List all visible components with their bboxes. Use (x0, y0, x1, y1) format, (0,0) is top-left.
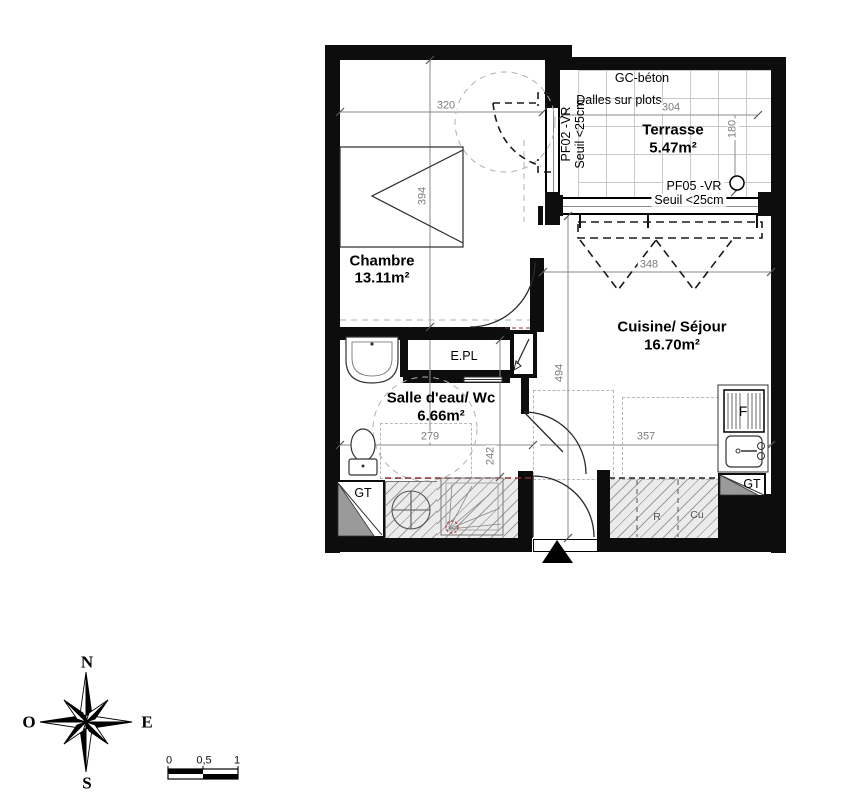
scale-half: 0,5 (196, 756, 211, 767)
room-label-chambre: Chambre (349, 254, 414, 269)
dim-terrasse-width: 304 (660, 103, 682, 114)
compass-west: O (22, 714, 35, 731)
floor-plan: GC-béton Dalles sur plots Terrasse 5.47m… (0, 0, 856, 800)
gt-left-label: GT (354, 487, 371, 500)
window-seuil-pf02: Seuil <25cm (574, 99, 587, 168)
fridge-label: F (739, 404, 748, 418)
scale-bar (168, 766, 238, 779)
dimension-lines (340, 60, 771, 538)
counter-cu-label: Cu (690, 510, 703, 521)
room-label-epl: E.PL (450, 350, 477, 363)
dim-terrasse-height: 180 (728, 118, 739, 140)
compass-rose (40, 672, 132, 772)
french-door-swing (578, 222, 762, 290)
room-area-terrasse: 5.47m² (649, 141, 697, 156)
turning-circle-chambre (455, 72, 555, 172)
siphon-icon (392, 491, 430, 529)
room-label-sdb: Salle d'eau/ Wc (387, 391, 496, 406)
shower-icon (441, 478, 503, 535)
door-entrance (533, 476, 594, 537)
terrasse-slabs-label: Dalles sur plots (576, 94, 661, 107)
window-label-pf02: PF02 -VR (560, 107, 573, 162)
room-label-cuisine: Cuisine/ Séjour (617, 320, 726, 335)
door-arc-chambre (470, 262, 535, 327)
compass-east: E (141, 714, 152, 731)
dimension-ticks (336, 56, 775, 542)
terrasse-material-label: GC-béton (615, 72, 669, 85)
dim-cuisine-width: 348 (638, 260, 660, 271)
kitchen-fixtures (718, 385, 768, 472)
entrance-arrow (542, 540, 573, 563)
dim-cuisine-height: 494 (555, 362, 566, 384)
dim-hall-height: 242 (486, 445, 497, 467)
dim-sdb-width: 279 (419, 432, 441, 443)
dim-cuisine-lower-width: 357 (635, 432, 657, 443)
room-label-terrasse: Terrasse (642, 123, 703, 138)
dim-chambre-height: 394 (418, 185, 429, 207)
epl-sliding-door (464, 377, 502, 382)
door-sdb (524, 412, 586, 474)
room-area-chambre: 13.11m² (354, 271, 409, 286)
room-area-sdb: 6.66m² (417, 409, 465, 424)
water-heater-arrow (514, 339, 529, 370)
scale-zero: 0 (166, 756, 172, 767)
washbasin-icon (346, 337, 398, 383)
window-swing-chambre (493, 93, 551, 172)
scale-one: 1 (234, 756, 240, 767)
room-area-cuisine: 16.70m² (644, 338, 700, 353)
window-label-pf05: PF05 -VR (664, 180, 725, 193)
toilet-icon (349, 429, 377, 475)
compass-south: S (82, 775, 91, 792)
counter-r-label: R (653, 512, 661, 523)
terrasse-drain (730, 176, 744, 190)
window-seuil-pf05: Seuil <25cm (651, 194, 726, 207)
gt-right-label: GT (743, 478, 760, 491)
dim-chambre-width: 320 (435, 101, 457, 112)
compass-north: N (81, 654, 93, 671)
bed-symbol (340, 147, 463, 247)
